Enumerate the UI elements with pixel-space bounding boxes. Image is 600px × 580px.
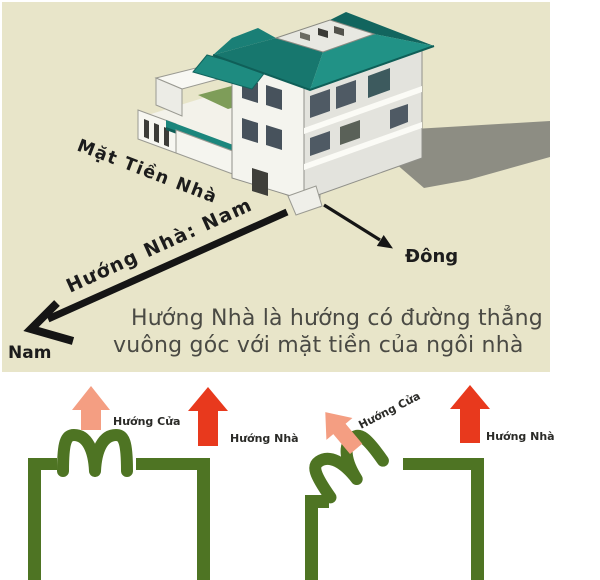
feng-shui-direction-diagram: Mặt Tiền Nhà Hướng Nhà: Nam Nam Đông Hướ…: [0, 0, 600, 580]
house-direction-panel: Mặt Tiền Nhà Hướng Nhà: Nam Nam Đông Hướ…: [2, 2, 550, 372]
house-direction-arrow: [188, 387, 228, 446]
house-direction-label: Hướng Nhà: [486, 430, 555, 443]
house-direction-label: Hướng Nhà: [230, 432, 299, 445]
house-direction-arrow: [450, 385, 490, 443]
south-label: Nam: [8, 343, 51, 363]
door-direction-label: Hướng Cửa: [356, 389, 422, 431]
diagram-door-angled: Hướng Cửa Hướng Nhà: [305, 385, 555, 580]
door-direction-label: Hướng Cửa: [113, 415, 180, 428]
diagram-door-centered: Hướng Cửa Hướng Nhà: [28, 386, 299, 580]
caption-line-1: Hướng Nhà là hướng có đường thẳng: [131, 305, 543, 331]
plan-diagrams: Hướng Cửa Hướng Nhà Hướng Cửa Hướng Nhà: [28, 385, 555, 580]
door-direction-arrow: [72, 386, 110, 430]
double-door-icon: [63, 435, 127, 471]
east-label: Đông: [405, 246, 458, 267]
house-walls: [305, 458, 484, 580]
caption-line-2: vuông góc với mặt tiền của ngôi nhà: [113, 333, 524, 358]
house-walls: [28, 458, 210, 580]
